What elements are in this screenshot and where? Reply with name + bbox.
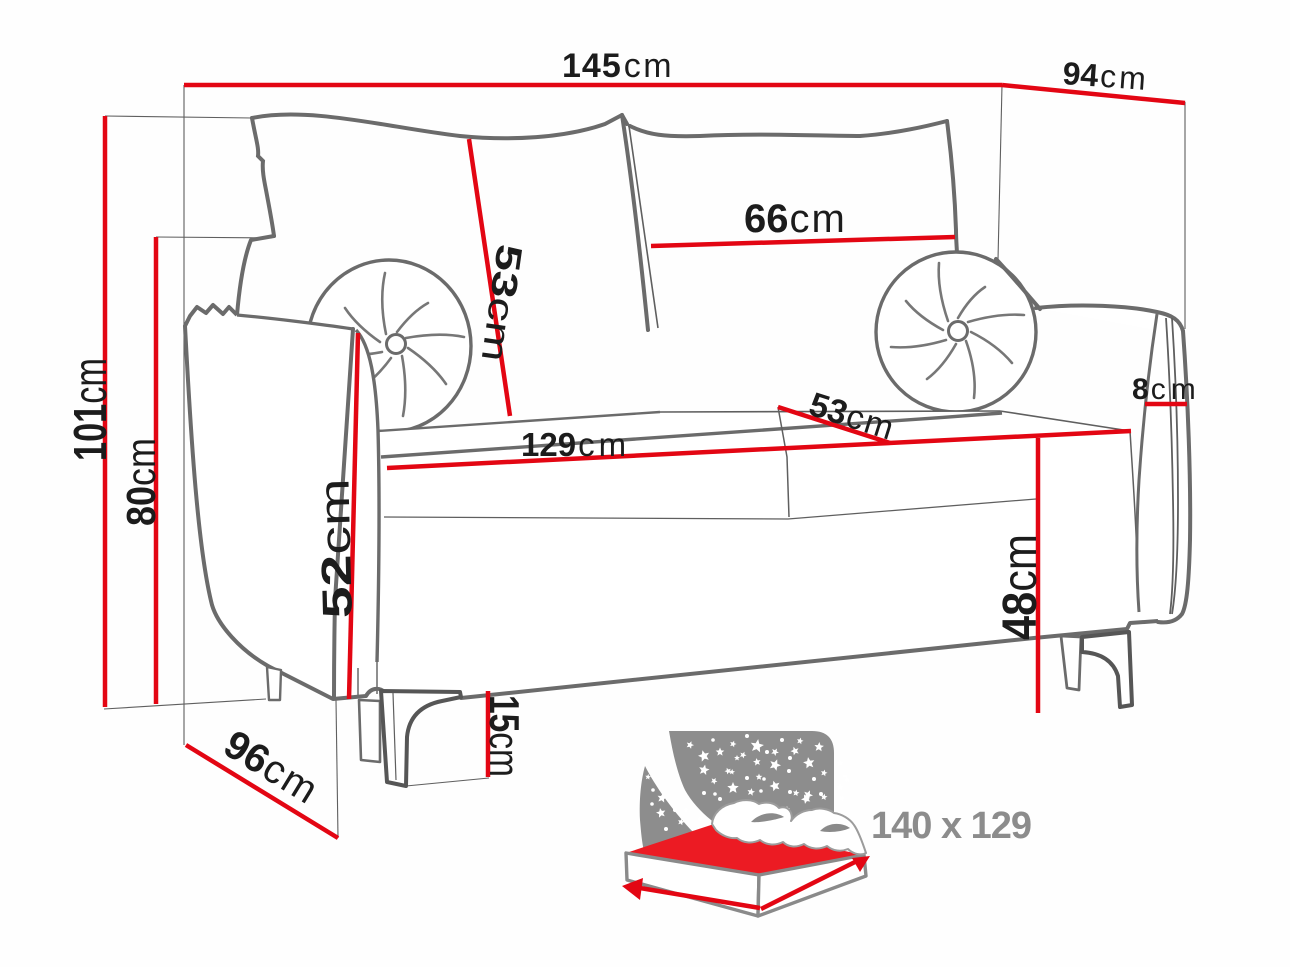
svg-text:66cm: 66cm [744,197,847,241]
svg-text:15cm: 15cm [481,695,528,777]
svg-text:80cm: 80cm [118,438,164,526]
svg-text:8cm: 8cm [1132,373,1201,406]
svg-text:94cm: 94cm [1062,55,1151,97]
svg-text:52cm: 52cm [310,478,361,619]
svg-text:48cm: 48cm [994,534,1047,640]
svg-text:101cm: 101cm [64,358,116,461]
svg-text:129cm: 129cm [521,426,630,463]
svg-text:140 x 129: 140 x 129 [871,805,1031,847]
svg-text:145cm: 145cm [562,47,674,85]
